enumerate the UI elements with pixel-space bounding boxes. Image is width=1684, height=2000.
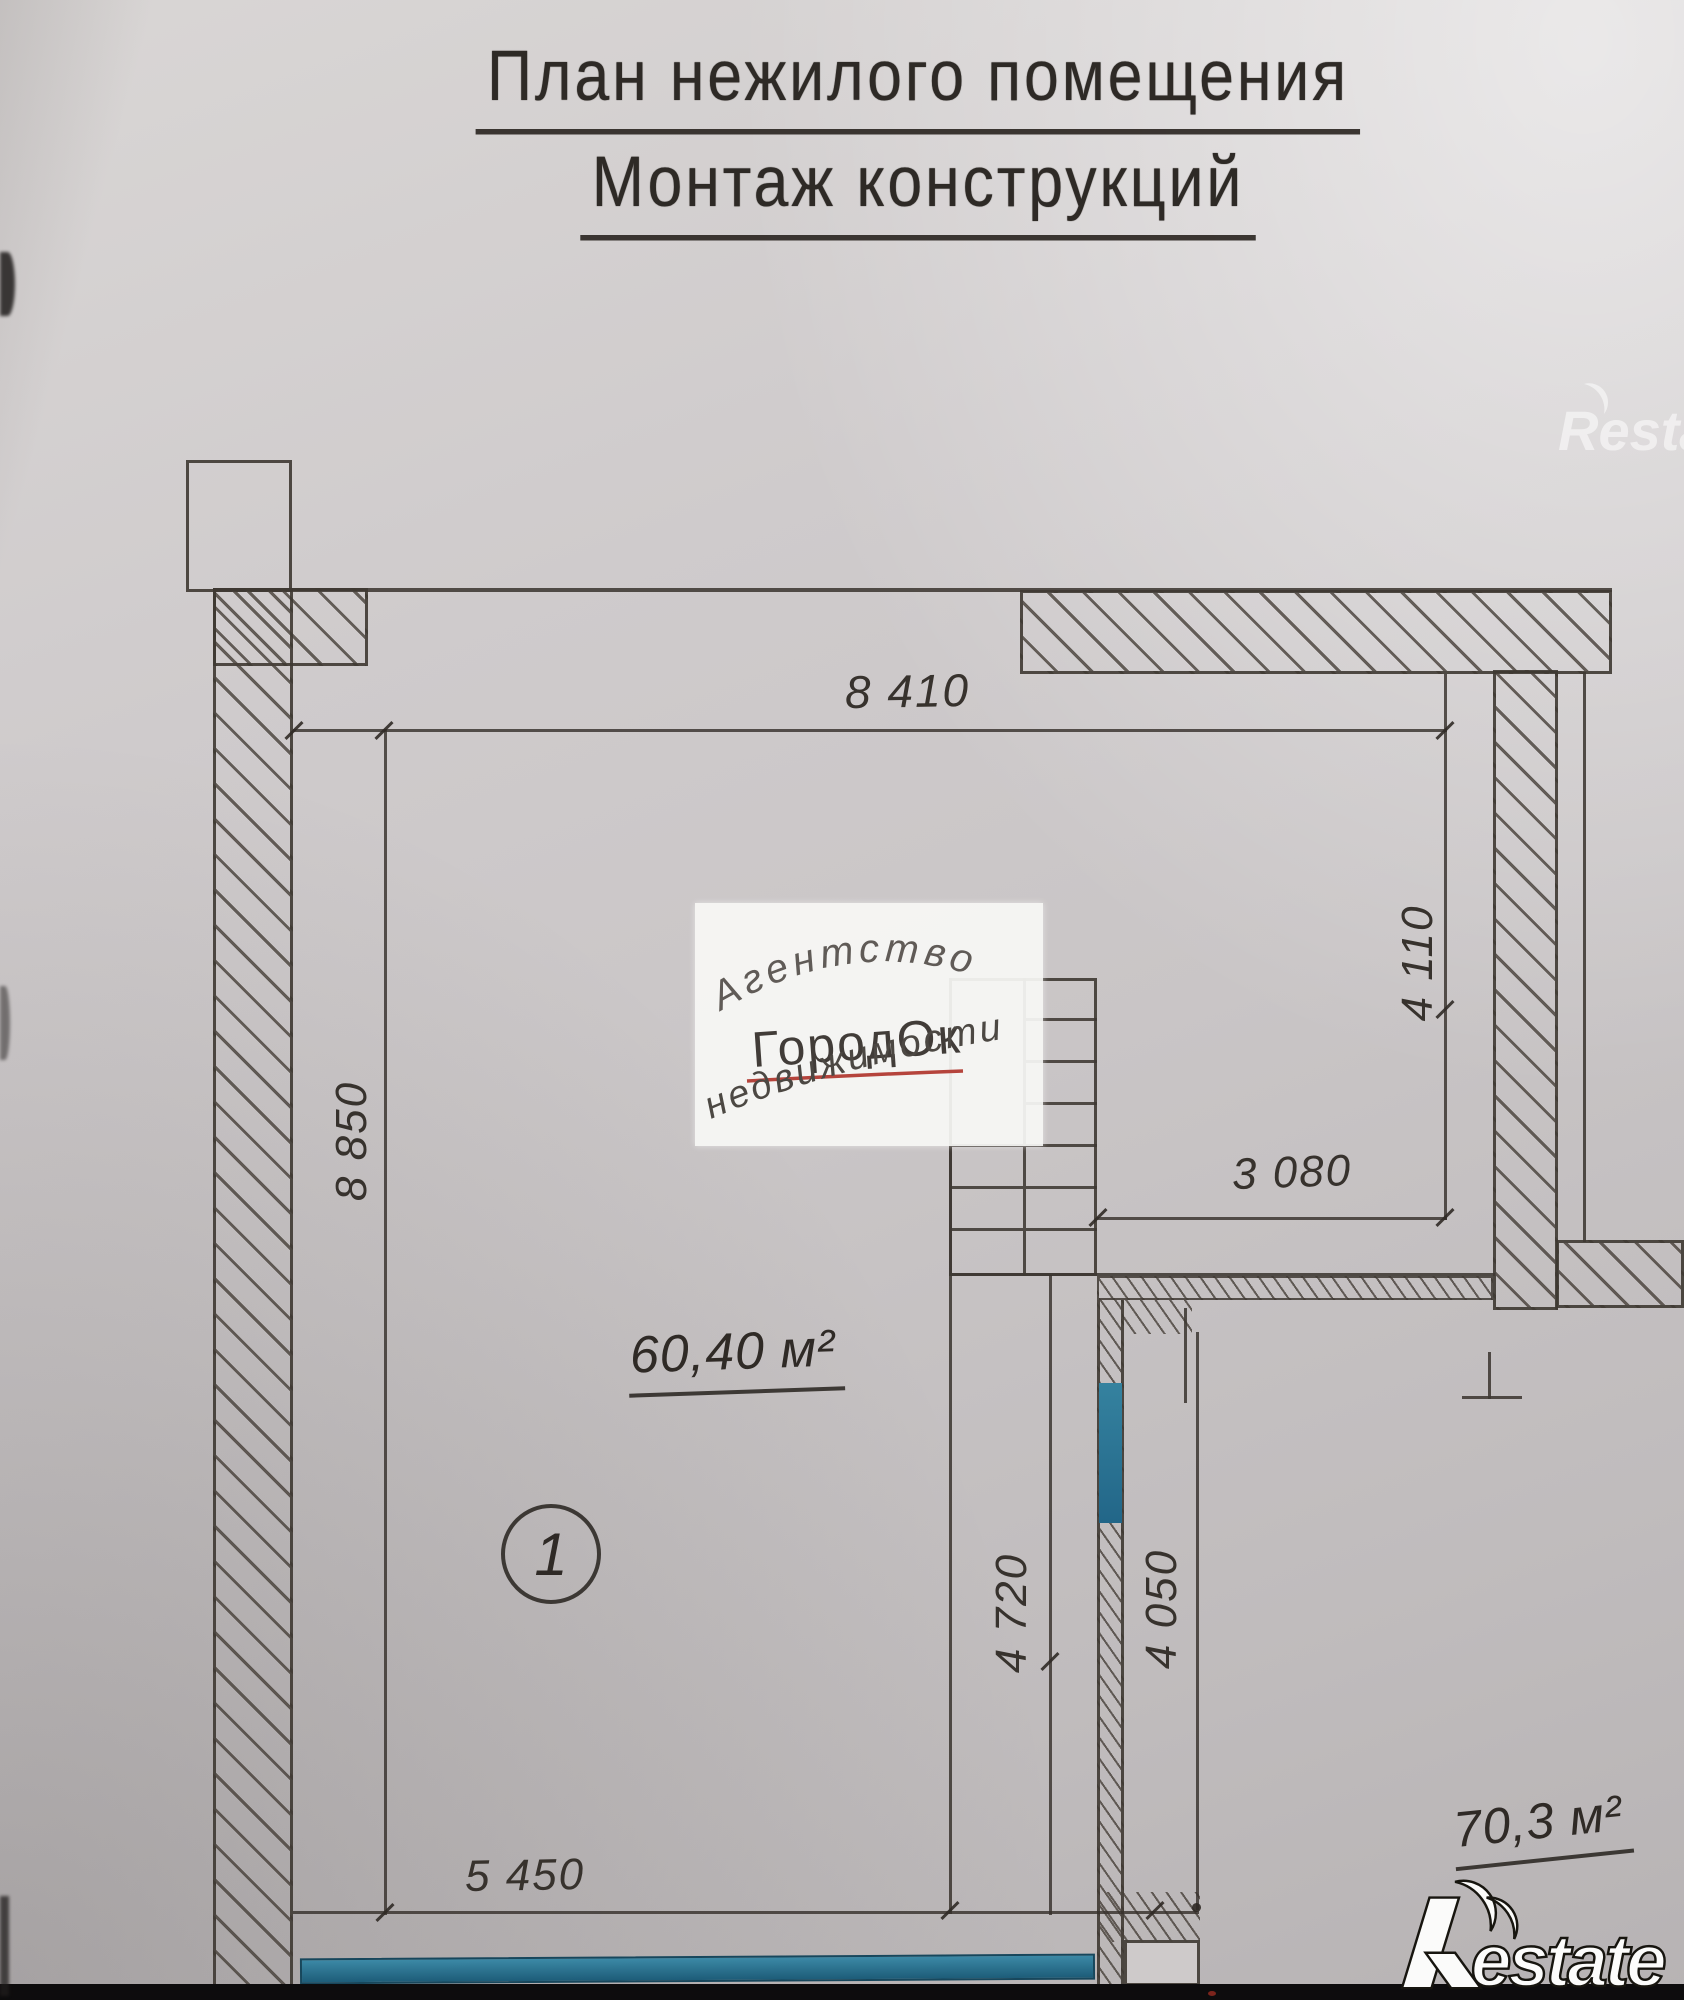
dim-label-inner: 3 080 [1231, 1146, 1353, 1200]
dim-label-bottom: 5 450 [465, 1850, 586, 1902]
restate-logo: estate [1368, 1870, 1684, 2000]
wall-sill-corner-patch [1122, 1300, 1192, 1334]
watermark-line1: Агентство [702, 926, 983, 1020]
room-area-label: 60,40 м² [627, 1318, 845, 1397]
wall-sill-strip [1097, 1276, 1493, 1300]
room2-area-label: 70,3 м² [1449, 1783, 1634, 1871]
wall-bottom-right [1556, 1240, 1684, 1308]
photo-artifact [0, 1896, 9, 1996]
photo-artifact [0, 986, 10, 1060]
floor-plan-photo: План нежилого помещения Монтаж конструкц… [0, 0, 1684, 2000]
room-number: 1 [534, 1520, 567, 1589]
dim-label-stair-left: 4 720 [987, 1503, 1037, 1723]
reference-mark [1462, 1396, 1522, 1399]
page-title: План нежилого помещения [452, 34, 1383, 127]
dim-line-right-upper [1444, 674, 1447, 1220]
dim-line-top [293, 729, 1447, 732]
dim-label-left: 8 850 [327, 1031, 377, 1251]
svg-text:Агентство: Агентство [702, 926, 983, 1020]
wall-left [213, 588, 293, 1988]
dim-label-stair-right: 4 050 [1137, 1499, 1187, 1719]
restate-logo-art: estate [1368, 1870, 1684, 2000]
wall-right-outer-line [1583, 672, 1586, 1242]
wall-bottom-rect [1124, 1940, 1200, 1986]
dim-line-stair-right [1196, 1332, 1199, 1910]
photo-artifact [0, 252, 15, 316]
dim-label-right-upper: 4 110 [1393, 853, 1443, 1073]
dim-line-left [384, 729, 387, 1915]
door-jamb-line [1184, 1308, 1187, 1403]
restate-watermark-small: Restate [1558, 378, 1684, 468]
dim-label-top: 8 410 [845, 663, 971, 719]
agency-watermark-art: Агентство ГородОк недвижимости [695, 903, 1043, 1146]
page-title-line1: План нежилого помещения [476, 34, 1361, 134]
wall-bottom-blue-segment [300, 1954, 1095, 1985]
stair-step [952, 1186, 1023, 1189]
dim-line-bottom [293, 1911, 1199, 1914]
stair-step [1026, 1186, 1097, 1189]
page-title-line2: Монтаж конструкций [580, 140, 1255, 240]
photo-artifact [1208, 1991, 1216, 1996]
wall-center-blue-segment [1099, 1383, 1122, 1523]
restate-watermark-text: Restate [1558, 399, 1684, 462]
page-subtitle: Монтаж конструкций [563, 140, 1274, 233]
restate-logo-text: estate [1471, 1921, 1665, 2000]
reference-mark [1488, 1352, 1491, 1399]
wall-top-right [1020, 590, 1612, 674]
room-number-circle: 1 [501, 1504, 601, 1604]
wall-left-upper-segment [186, 460, 292, 592]
dim-dot [1192, 1903, 1201, 1912]
dim-line-inner [1097, 1217, 1447, 1220]
wall-right [1493, 670, 1558, 1310]
agency-watermark: Агентство ГородОк недвижимости [695, 903, 1043, 1146]
stair-step [952, 1228, 1023, 1231]
stair-step [1026, 1228, 1097, 1231]
dim-line-stair-left [1049, 1275, 1052, 1915]
